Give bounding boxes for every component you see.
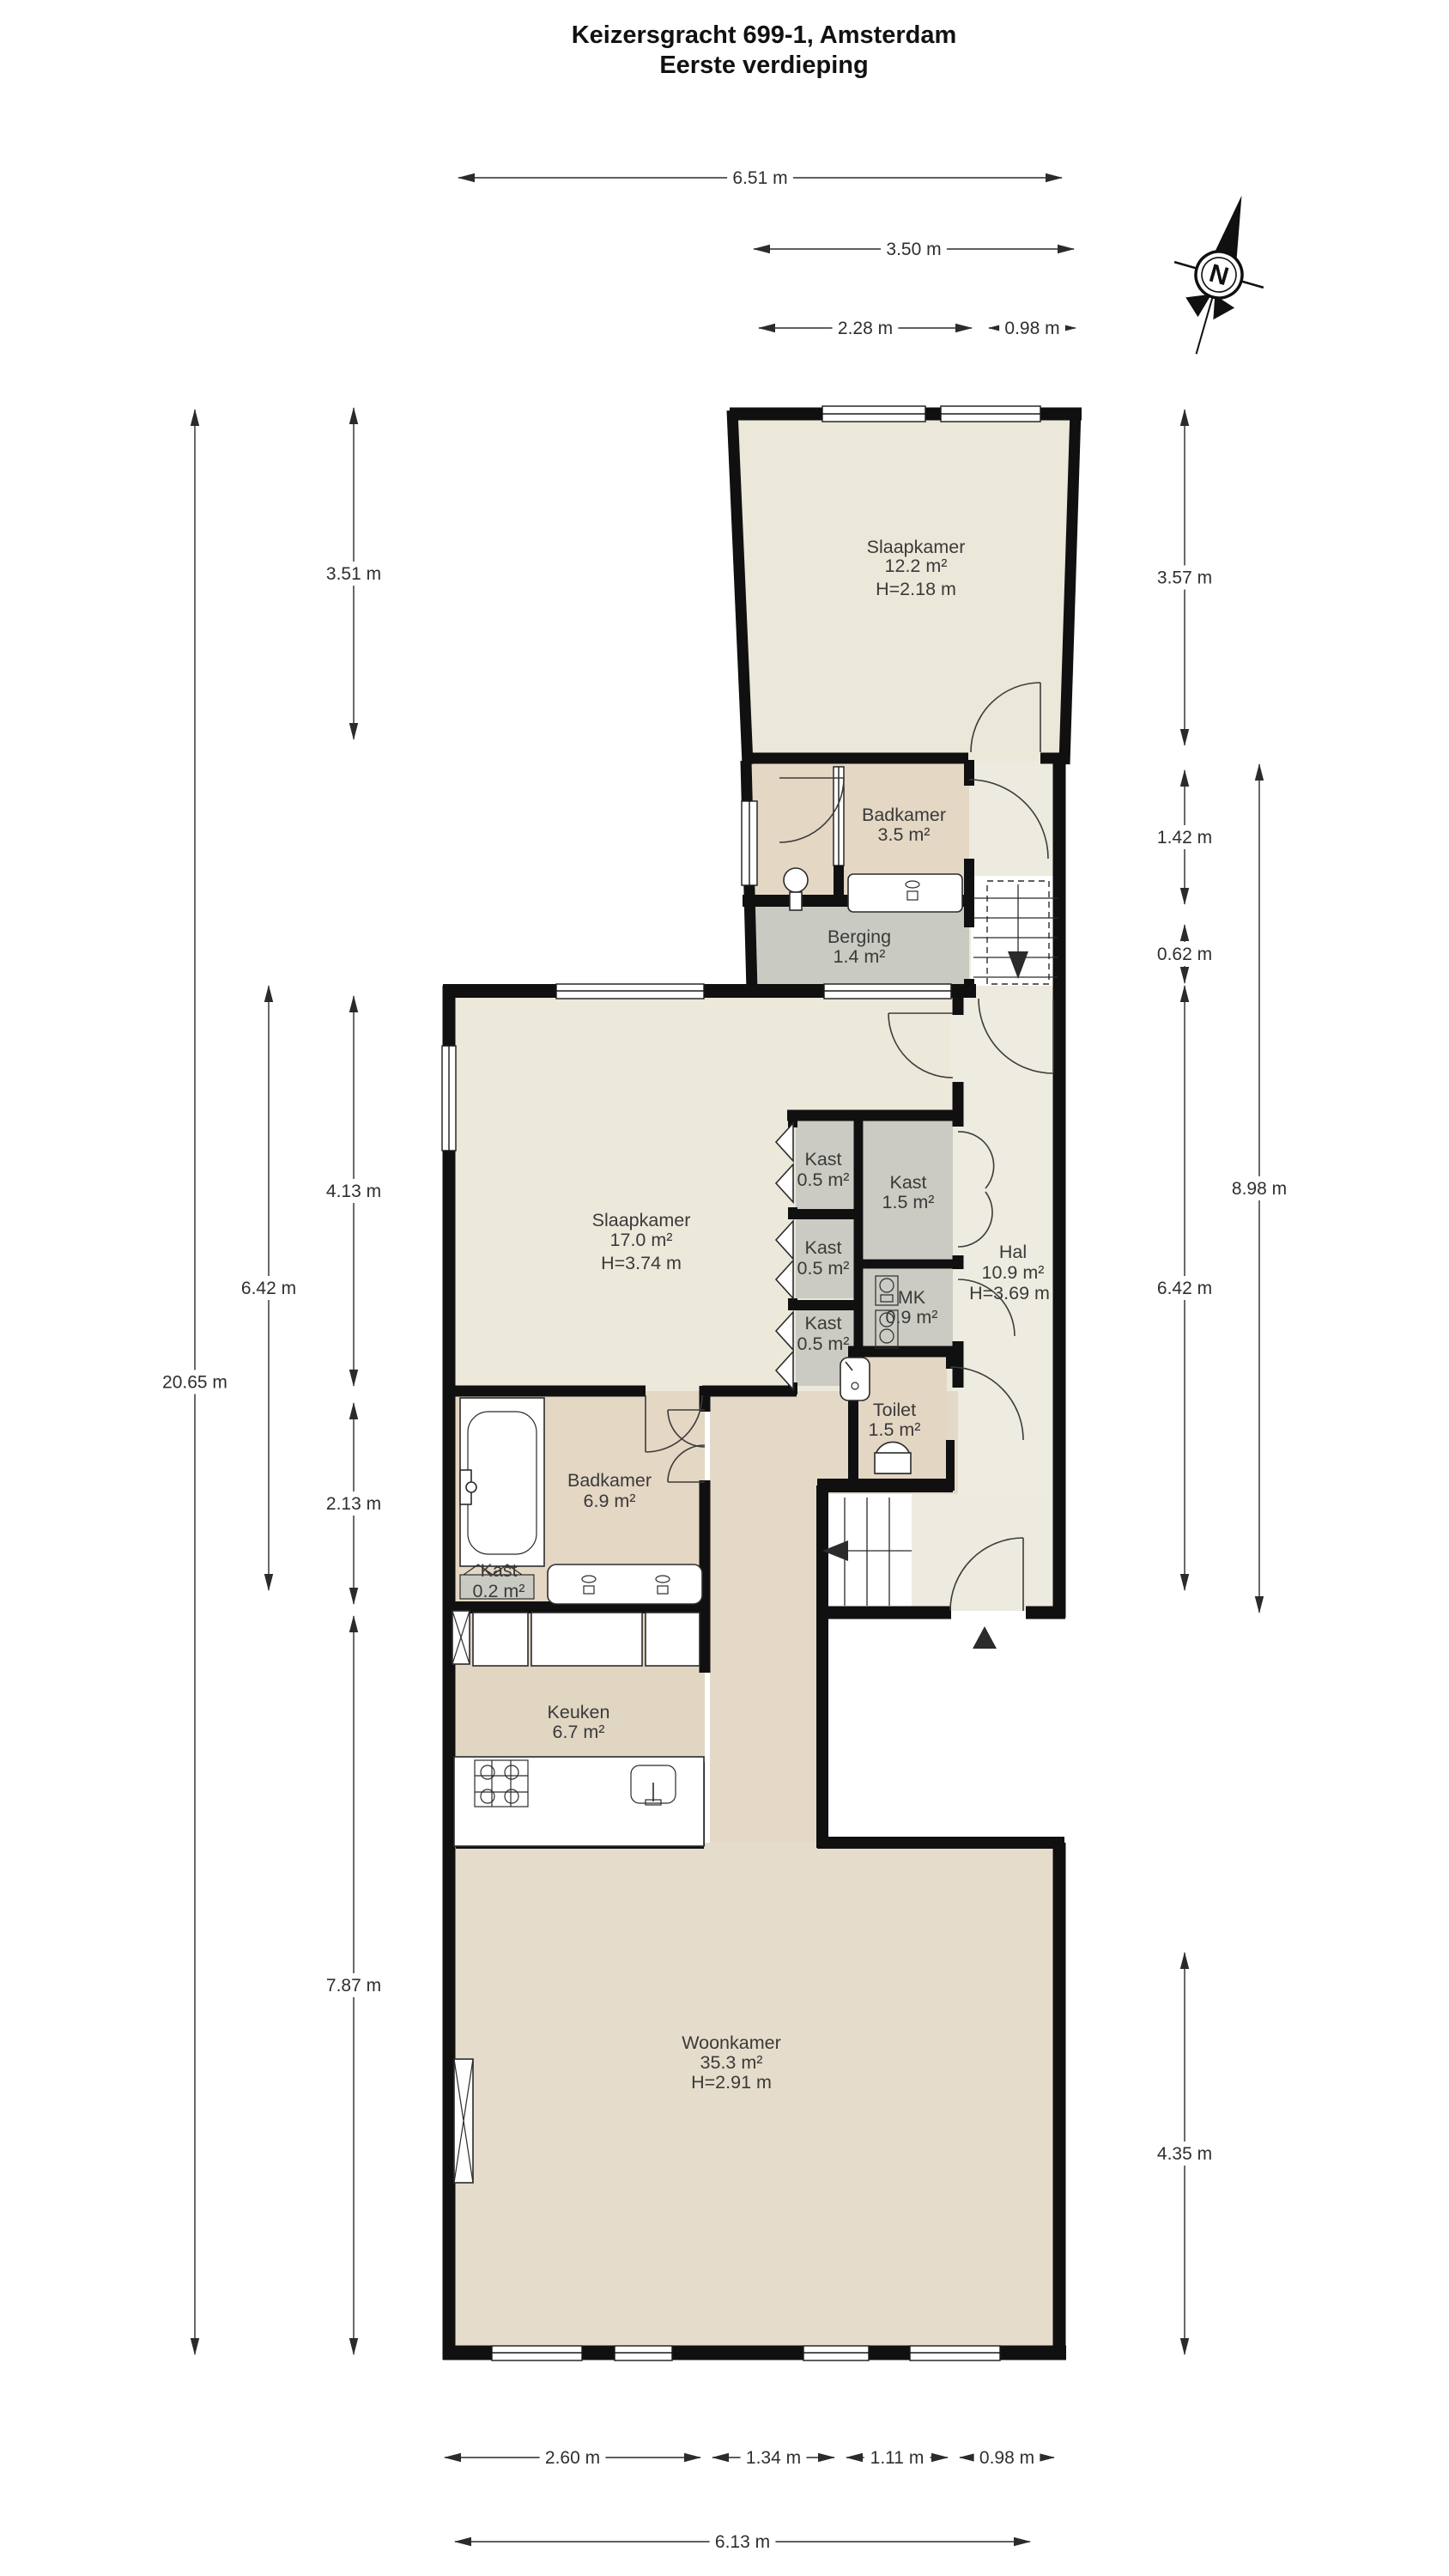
label-woonkamer-area: 35.3 m²	[700, 2052, 763, 2073]
label-keuken-name: Keuken	[548, 1702, 610, 1722]
dimension-label: 1.34 m	[746, 2448, 801, 2468]
room-woonkamer	[454, 1843, 1059, 2356]
label-hal-name: Hal	[999, 1242, 1027, 1262]
label-hal-area: 10.9 m²	[982, 1262, 1045, 1283]
label-slaapkamer-boven-name: Slaapkamer	[867, 537, 966, 557]
label-slaapkamer-height: H=3.74 m	[601, 1253, 682, 1273]
dimension-label: 7.87 m	[326, 1976, 381, 1996]
label-keuken-area: 6.7 m²	[553, 1722, 605, 1742]
label-kast-c-name: Kast	[804, 1313, 841, 1334]
entrance-arrow-icon	[973, 1626, 997, 1649]
vanity-icon	[548, 1564, 702, 1604]
label-badkamer-name: Badkamer	[567, 1470, 652, 1491]
floorplan-page: Keizersgracht 699-1, Amsterdam Eerste ve…	[0, 0, 1449, 2576]
label-kast-b-name: Kast	[804, 1237, 841, 1258]
dimension-label: 6.42 m	[241, 1279, 296, 1298]
label-mk-area: 0.9 m²	[886, 1307, 938, 1327]
entree-hal	[912, 1494, 1059, 1611]
label-badkamer-boven-name: Badkamer	[862, 805, 946, 825]
label-kast-c-area: 0.5 m²	[797, 1334, 850, 1354]
label-slaapkamer-name: Slaapkamer	[592, 1210, 691, 1230]
dimension-label: 1.42 m	[1157, 828, 1212, 848]
label-kast-a-area: 0.5 m²	[797, 1170, 850, 1190]
label-toilet-area: 1.5 m²	[869, 1419, 921, 1440]
dimension-label: 1.11 m	[870, 2448, 925, 2468]
label-woonkamer-height: H=2.91 m	[691, 2072, 772, 2093]
stairs-top-floor	[971, 876, 1058, 986]
dimension-label: 8.98 m	[1232, 1179, 1287, 1199]
kitchen-island-icon	[454, 1757, 704, 1846]
dimension-label: 0.98 m	[1004, 319, 1059, 338]
label-badkamer-boven-area: 3.5 m²	[878, 824, 931, 845]
compass-icon: N	[1152, 183, 1287, 367]
dimension-label: 4.13 m	[326, 1182, 381, 1201]
kitchen-cabinets-icon	[452, 1611, 700, 1666]
dimension-label: 6.51 m	[732, 168, 787, 188]
label-berging-area: 1.4 m²	[834, 946, 886, 967]
label-kast-klein-name: Kast	[480, 1560, 517, 1581]
toilet-bottom-icon	[875, 1442, 911, 1473]
label-badkamer-area: 6.9 m²	[584, 1491, 636, 1511]
dimension-label: 2.13 m	[326, 1494, 381, 1514]
corner-sink-icon	[840, 1358, 870, 1400]
label-mk-name: MK	[898, 1287, 926, 1308]
dimension-label: 6.13 m	[715, 2532, 770, 2552]
label-hal-height: H=3.69 m	[969, 1283, 1050, 1303]
label-berging-name: Berging	[828, 927, 891, 947]
label-woonkamer-name: Woonkamer	[682, 2032, 781, 2053]
label-slaapkamer-area: 17.0 m²	[610, 1230, 673, 1250]
label-kast-groot-area: 1.5 m²	[882, 1192, 935, 1212]
label-kast-a-name: Kast	[804, 1149, 841, 1170]
dimension-label: 0.98 m	[979, 2448, 1034, 2468]
dimension-label: 3.51 m	[326, 564, 381, 584]
dimension-label: 2.28 m	[838, 319, 893, 338]
label-toilet-name: Toilet	[873, 1400, 916, 1420]
dimension-label: 20.65 m	[162, 1373, 227, 1393]
glass-partition-icon	[834, 767, 844, 905]
chimney-icon	[454, 2059, 473, 2183]
label-kast-groot-name: Kast	[889, 1172, 926, 1193]
label-kast-klein-area: 0.2 m²	[473, 1581, 525, 1601]
label-slaapkamer-boven-height: H=2.18 m	[876, 579, 956, 599]
dimension-label: 4.35 m	[1157, 2144, 1212, 2164]
bathtub-icon	[460, 1398, 544, 1566]
label-slaapkamer-boven-area: 12.2 m²	[885, 556, 948, 576]
dimension-label: 3.50 m	[886, 240, 941, 259]
floorplan-canvas: Slaapkamer 12.2 m² H=2.18 m Badkamer 3.5…	[0, 0, 1449, 2576]
washbasin-top-icon	[848, 874, 962, 912]
label-kast-b-area: 0.5 m²	[797, 1258, 850, 1279]
room-fills	[454, 414, 1077, 2356]
dimension-label: 0.62 m	[1157, 945, 1212, 964]
woonkamer-strip	[710, 1494, 822, 1848]
dimension-label: 2.60 m	[545, 2448, 600, 2468]
dimension-label: 3.57 m	[1157, 568, 1212, 588]
dimension-label: 6.42 m	[1157, 1279, 1212, 1298]
